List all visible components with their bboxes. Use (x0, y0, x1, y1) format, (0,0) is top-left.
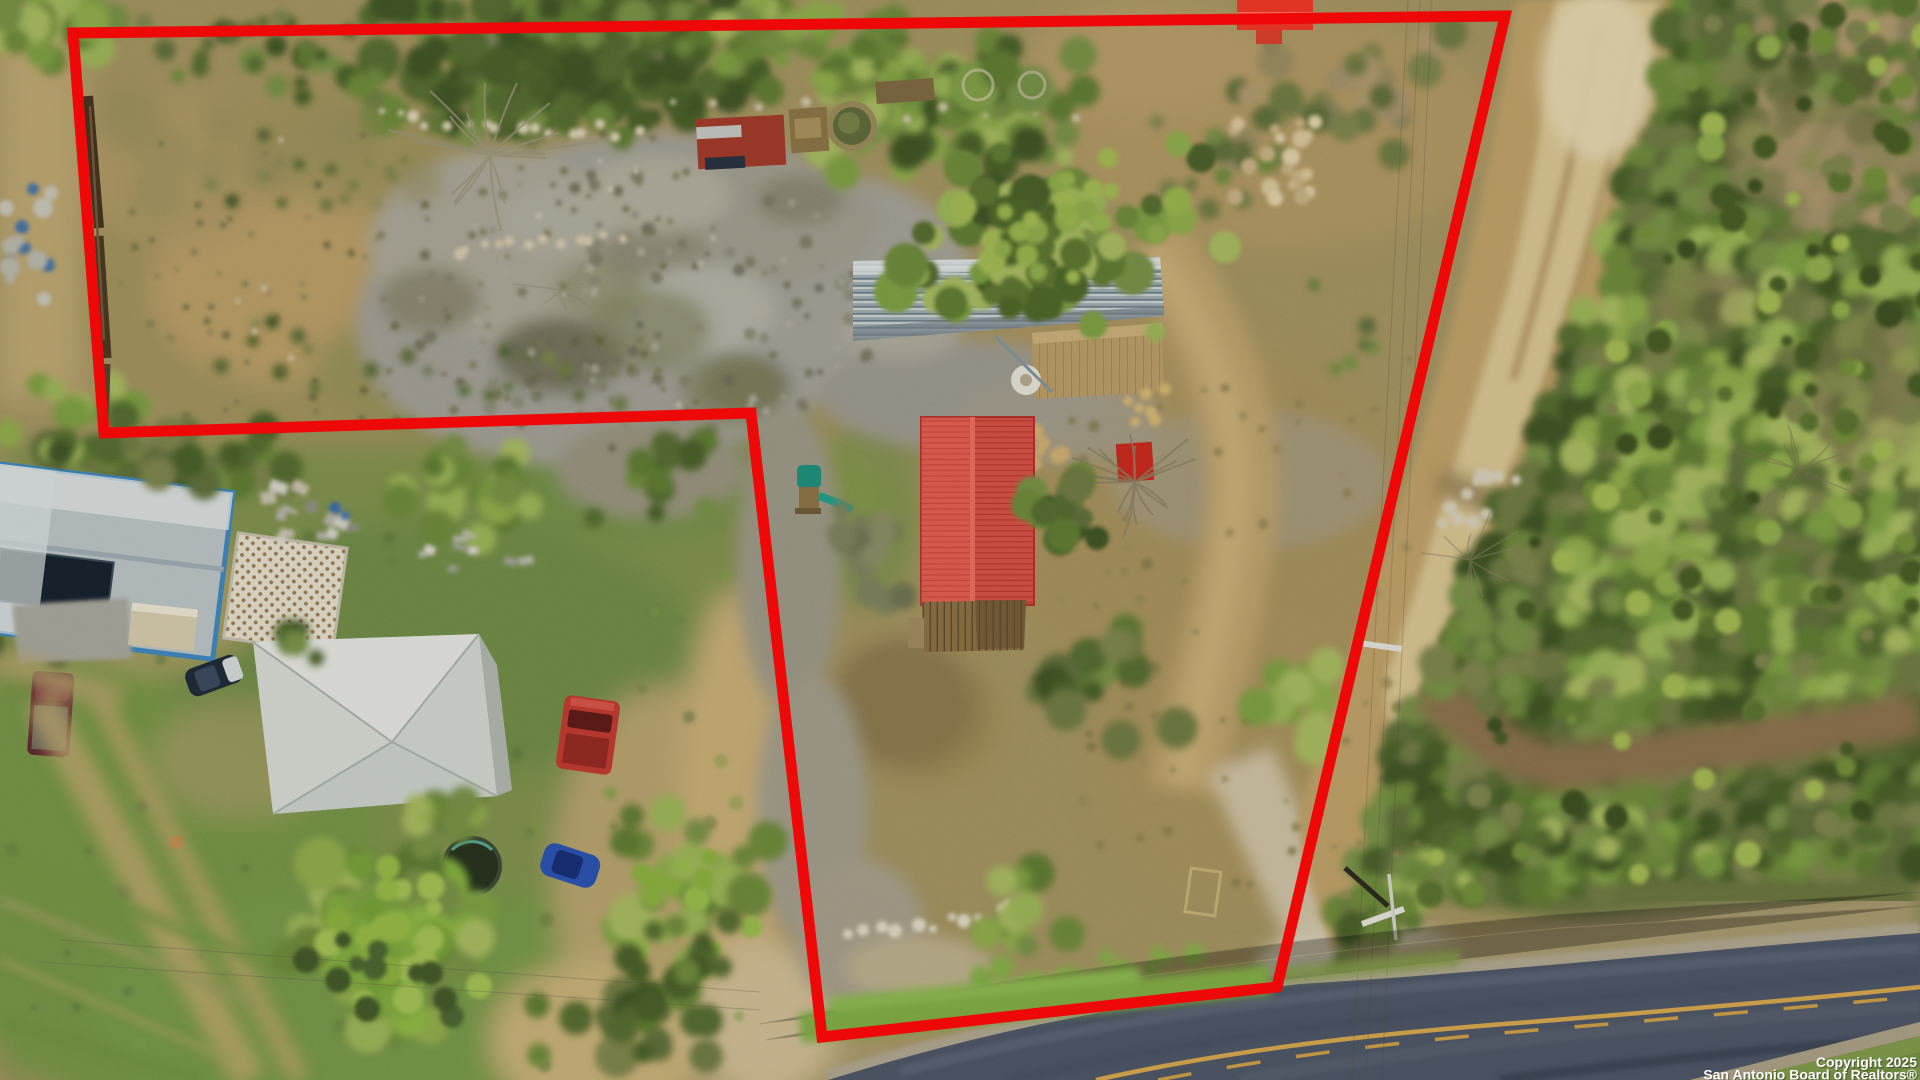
svg-text:San Antonio Board of Realtors®: San Antonio Board of Realtors® (1703, 1067, 1917, 1080)
